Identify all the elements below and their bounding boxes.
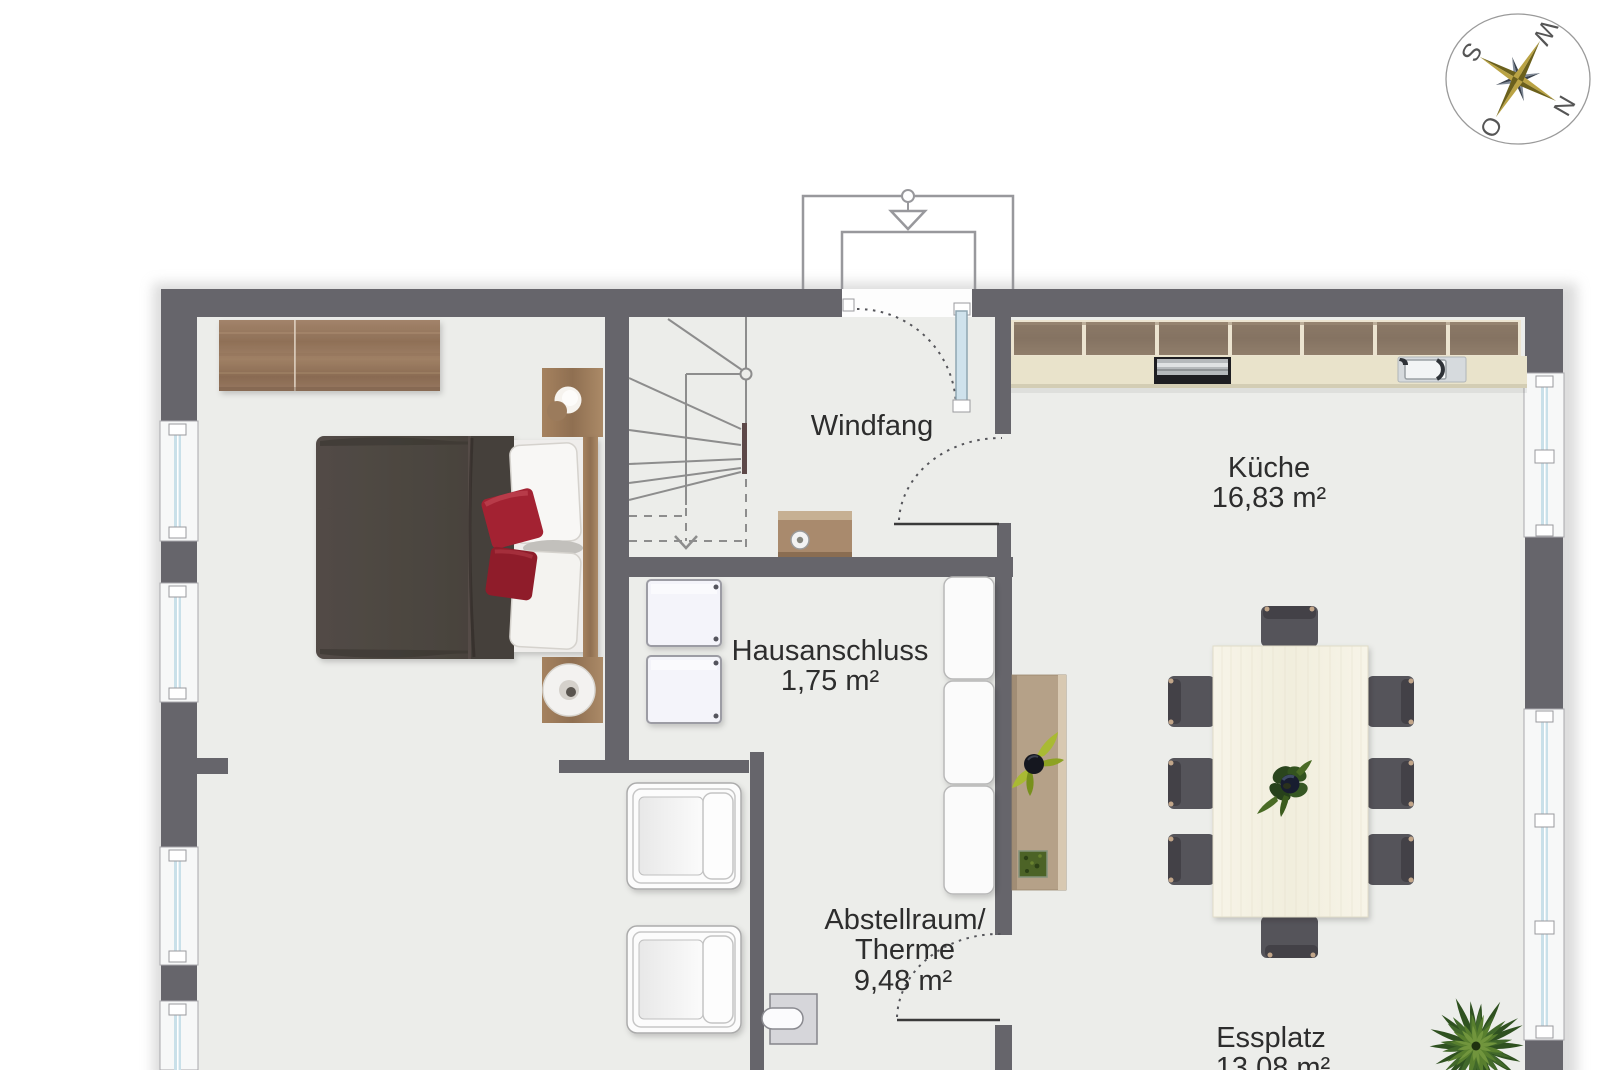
svg-text:Therme: Therme xyxy=(855,934,955,966)
svg-text:Küche: Küche xyxy=(1228,452,1310,484)
svg-text:Abstellraum/: Abstellraum/ xyxy=(824,904,986,936)
svg-text:Essplatz: Essplatz xyxy=(1216,1022,1326,1054)
svg-text:Windfang: Windfang xyxy=(811,410,934,442)
svg-text:1,75 m²: 1,75 m² xyxy=(781,665,880,697)
svg-text:9,48 m²: 9,48 m² xyxy=(854,965,953,997)
svg-text:16,83 m²: 16,83 m² xyxy=(1212,482,1327,514)
svg-text:Hausanschluss: Hausanschluss xyxy=(732,635,929,667)
svg-text:13,08 m²: 13,08 m² xyxy=(1216,1052,1331,1070)
